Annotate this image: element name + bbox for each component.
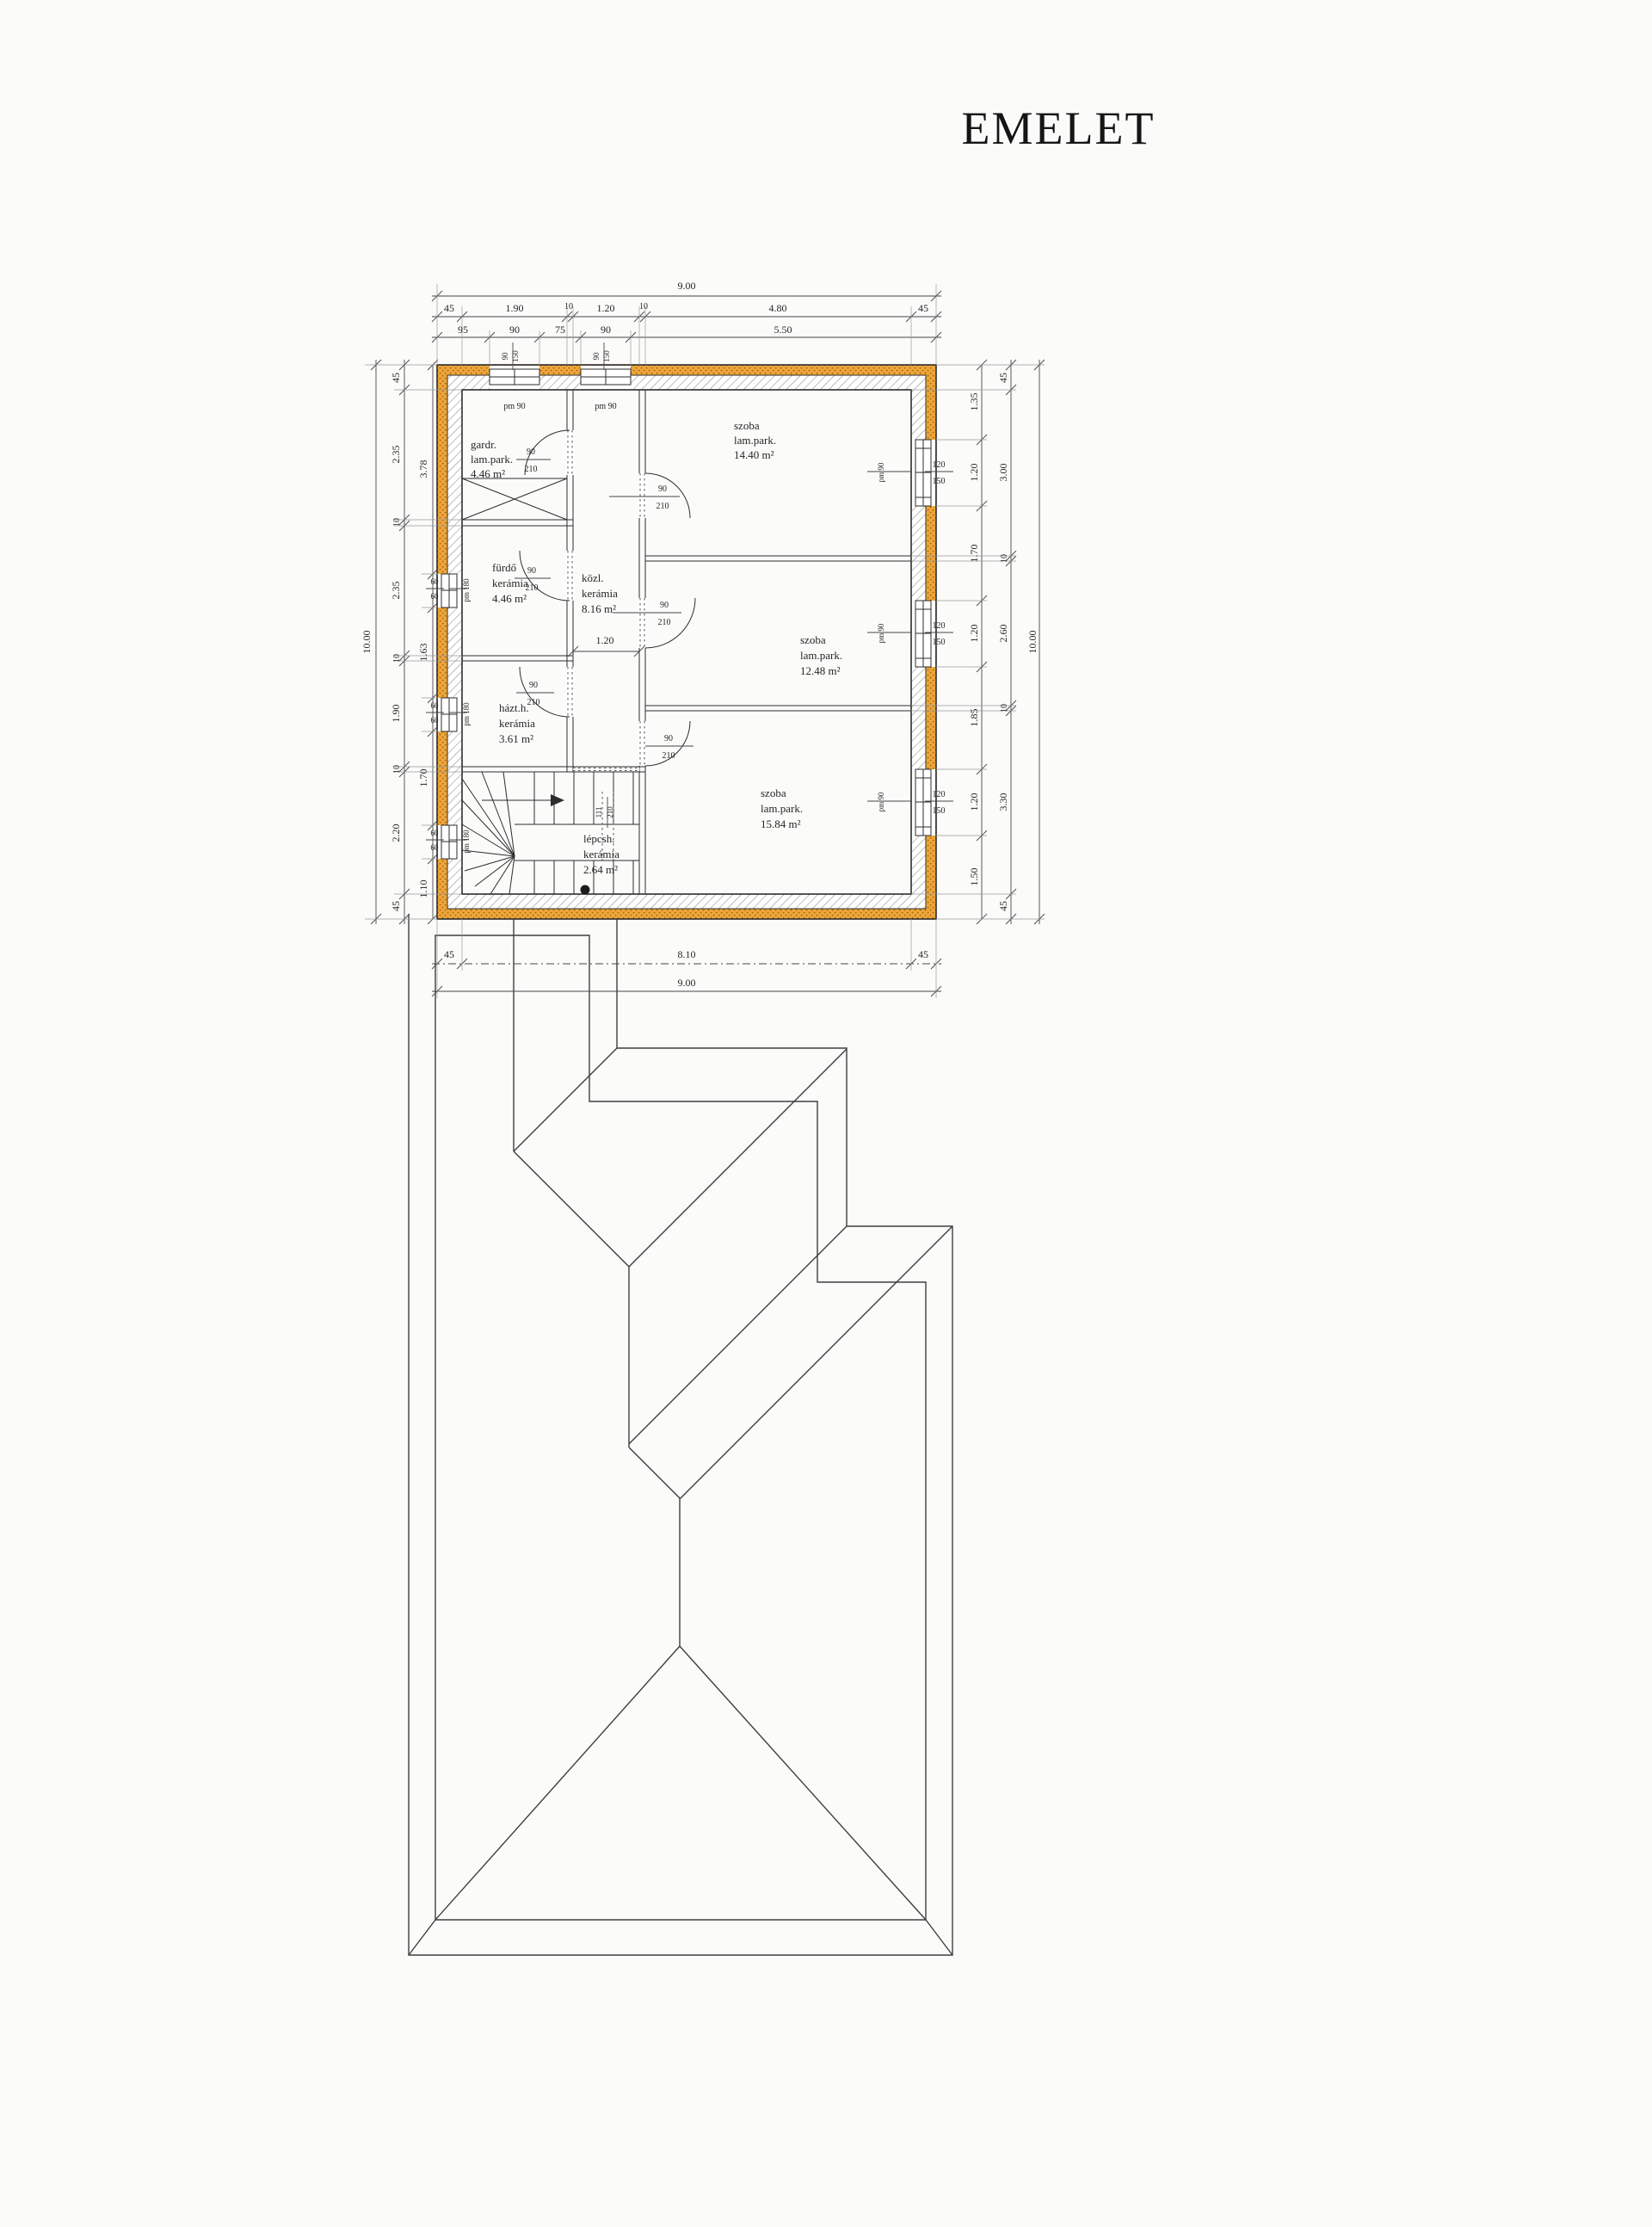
room-szoba1-floor: lam.park. [734,434,776,447]
dim-left-sub: 1.63 [417,644,429,662]
dim-left: 10 [392,518,402,527]
dim-top-sub: 90 [601,324,611,336]
dim-right: 10 [1000,704,1009,713]
dim-right-sub: 1.50 [968,868,980,886]
dim-left: 10 [392,765,402,774]
room-hazth-name: házt.h. [499,701,529,714]
room-szoba1-name: szoba [734,419,760,432]
window-size: 60 [431,843,440,852]
dim-right: 3.00 [997,464,1009,482]
wall-hatch-band [447,375,926,909]
dim-top: 10 [639,302,648,312]
door-size: 210 [527,698,540,707]
dim-right-sub: 1.20 [968,793,980,811]
window-parapet: pm 90 [877,623,885,643]
room-furdo-floor: kerámia [492,577,528,589]
dim-left: 45 [390,901,402,911]
floor-plan [437,365,936,919]
doors [520,430,695,771]
dim-top-overall: 9.00 [678,280,696,292]
dim-right-sub: 1.20 [968,464,980,482]
room-kozl-name: közl. [582,571,604,584]
stair-opening-size: 111 [595,807,603,818]
dim-left-sub: 1.70 [417,769,429,787]
door-size: 90 [527,447,535,457]
dim-left: 10 [392,654,402,663]
room-szoba3-name: szoba [761,787,786,799]
door-arc-furdo [520,551,570,601]
dim-corridor: 1.20 [596,634,614,646]
room-szoba3-floor: lam.park. [761,802,803,815]
window-size: 60 [431,716,440,725]
window-size: 60 [431,829,440,837]
room-hazth-floor: kerámia [499,717,535,730]
door-gap-dashes [568,430,644,771]
dim-right-sub: 1.20 [968,625,980,643]
dim-right-sub: 1.70 [968,545,980,563]
room-lepcsh-floor: kerámia [583,848,619,861]
roof-wall-outline [435,935,926,1920]
page: { "title": "EMELET", "colors": { "insula… [0,0,1652,2227]
window-frames [441,369,931,859]
dim-left: 2.20 [390,824,402,842]
dim-left: 45 [390,373,402,383]
dim-right: 3.30 [997,793,1009,811]
room-lepcsh-area: 2.64 m² [583,863,618,876]
dim-left: 1.90 [390,705,402,723]
dim-top-sub: 90 [509,324,520,336]
dim-right: 2.60 [997,625,1009,643]
dim-left-sub: 1.10 [417,880,429,898]
dim-top-sub: 5.50 [774,324,792,336]
dim-left-sub: 3.78 [417,460,429,478]
window-size: 150 [933,806,946,816]
window-gaps [438,366,935,859]
windows [438,366,935,859]
window-parapet: pm 90 [877,792,885,811]
dim-right-sub: 1.35 [968,393,980,411]
drawing-sheet: EMELET [0,0,1652,2227]
wall-mid-line [447,375,926,909]
room-szoba2-floor: lam.park. [800,649,842,662]
dim-top-sub: 75 [555,324,565,336]
door-size: 90 [527,566,536,576]
dim-top: 45 [918,302,928,314]
door-size: 90 [658,484,667,494]
stair-opening-size: 210 [606,806,614,818]
dim-right: 45 [997,373,1009,383]
window-size: 120 [933,790,946,799]
room-szoba2-name: szoba [800,633,826,646]
door-size: 210 [525,465,538,474]
room-hazth-area: 3.61 m² [499,732,533,745]
dim-right: 10 [1000,554,1009,563]
window-size: 60 [431,577,440,586]
room-gardr-name: gardr. [471,438,496,451]
window-size: 150 [933,638,946,647]
room-kozl-area: 8.16 m² [582,602,616,615]
window-parapet: pm 180 [462,578,471,602]
dim-left-overall: 10.00 [361,631,373,654]
door-gaps [566,430,647,771]
window-size: 60 [431,701,440,710]
dim-top: 1.90 [506,302,524,314]
door-size: 90 [660,601,669,610]
door-size: 90 [529,681,538,690]
room-szoba2-area: 12.48 m² [800,664,841,677]
door-arc-szoba1 [645,473,690,518]
dim-left: 2.35 [390,446,402,464]
roof-eave-outline [409,914,952,1955]
dim-top: 10 [564,302,573,312]
dim-bottom: 45 [918,948,928,960]
floor-plan-drawing: 9.00451.90101.20104.8045959075905.509015… [0,0,1652,2227]
dim-top: 45 [444,302,454,314]
room-furdo-area: 4.46 m² [492,592,527,605]
room-gardr-area: 4.46 m² [471,467,505,480]
dim-top: 1.20 [597,302,615,314]
wardrobe-symbol [462,478,567,520]
dim-top-sub: 95 [458,324,468,336]
window-size: 120 [933,621,946,631]
room-szoba3-area: 15.84 m² [761,817,801,830]
dim-bottom: 45 [444,948,454,960]
dim-left: 2.35 [390,582,402,600]
room-kozl-floor: kerámia [582,587,618,600]
dim-bottom: 8.10 [678,948,696,960]
room-szoba1-area: 14.40 m² [734,448,774,461]
window-size: 60 [431,592,440,601]
window-parapet: pm 90 [595,402,616,411]
dim-top: 4.80 [769,302,787,314]
window-size: 120 [933,460,946,470]
window-parapet: pm 180 [462,702,471,726]
window-parapet: pm 180 [462,830,471,854]
fraction-leader-lines [426,342,953,840]
stair-walkline-dot [581,885,590,895]
door-size: 210 [663,751,675,761]
door-size: 210 [656,502,669,511]
window-parapet: pm 90 [877,462,885,482]
dim-right-sub: 1.85 [968,709,980,727]
door-size: 90 [664,734,673,743]
door-size: 210 [658,618,671,627]
room-gardr-floor: lam.park. [471,453,513,466]
dim-bottom-overall: 9.00 [678,977,696,989]
window-size: 150 [933,477,946,486]
window-size: 90 [501,352,509,361]
dim-right-overall: 10.00 [1026,631,1039,654]
window-size: 90 [592,352,601,361]
window-size: 150 [511,350,520,362]
room-lepcsh-name: lépcsh. [583,832,614,845]
roof-hips-ridges [409,1048,952,1955]
dim-right: 45 [997,901,1009,911]
room-furdo-name: fürdő [492,561,516,574]
window-parapet: pm 90 [503,402,525,411]
window-size: 150 [602,350,611,362]
roof-plan [409,914,952,1955]
